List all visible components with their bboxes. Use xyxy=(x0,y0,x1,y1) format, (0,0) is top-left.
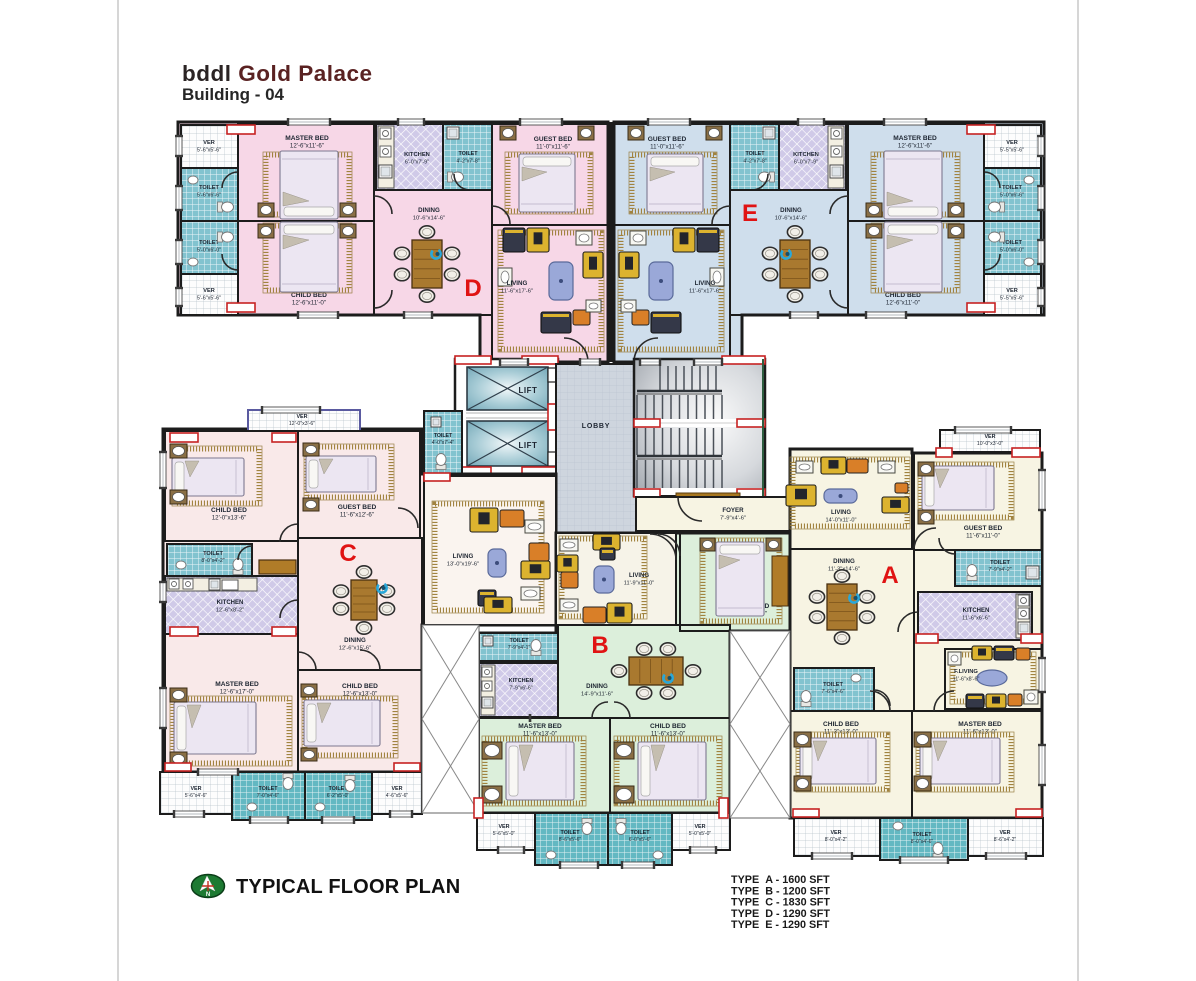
svg-text:5'-0"x6'-0": 5'-0"x6'-0" xyxy=(197,248,221,254)
svg-text:GUEST BED: GUEST BED xyxy=(964,525,1003,532)
svg-text:12'-0"x3'-6": 12'-0"x3'-6" xyxy=(289,421,315,427)
svg-text:LOBBY: LOBBY xyxy=(582,423,611,430)
svg-text:VER: VER xyxy=(296,414,307,420)
svg-text:TYPE C - 1830 SFT: TYPE C - 1830 SFT xyxy=(731,897,830,909)
svg-text:4'-2"x7'-8": 4'-2"x7'-8" xyxy=(456,159,479,165)
svg-text:GUEST BED: GUEST BED xyxy=(534,136,573,143)
svg-text:11'-6"x13'-0": 11'-6"x13'-0" xyxy=(651,731,685,738)
svg-text:KITCHEN: KITCHEN xyxy=(793,152,819,158)
svg-text:MASTER BED: MASTER BED xyxy=(518,723,562,730)
svg-text:4'-0"x7'-4": 4'-0"x7'-4" xyxy=(432,440,455,446)
svg-text:12'-6"x13'-0": 12'-6"x13'-0" xyxy=(343,691,378,698)
svg-text:TOILET: TOILET xyxy=(199,240,219,246)
svg-text:14'-0"x11'-0": 14'-0"x11'-0" xyxy=(826,518,857,524)
svg-text:F.LIVING: F.LIVING xyxy=(954,669,978,675)
svg-text:VER: VER xyxy=(830,830,841,836)
svg-text:12'-6"x11'-0": 12'-6"x11'-0" xyxy=(292,300,326,307)
svg-text:11'-6"x6'-6": 11'-6"x6'-6" xyxy=(962,616,990,622)
svg-text:7'-6"x4'-6": 7'-6"x4'-6" xyxy=(821,689,844,695)
svg-text:TOILET: TOILET xyxy=(912,832,932,838)
svg-text:13'-0"x19'-6": 13'-0"x19'-6" xyxy=(447,562,479,568)
svg-text:GUEST BED: GUEST BED xyxy=(338,504,377,511)
svg-text:FOYER: FOYER xyxy=(722,507,744,514)
svg-text:8'-6"x5'-6": 8'-6"x5'-6" xyxy=(559,837,582,843)
svg-text:LIVING: LIVING xyxy=(507,280,528,287)
svg-text:10'-6"x14'-6": 10'-6"x14'-6" xyxy=(413,216,445,222)
svg-text:8'-0"x4'-2": 8'-0"x4'-2" xyxy=(201,558,224,564)
svg-text:8'-0"x4'-2": 8'-0"x4'-2" xyxy=(825,837,848,843)
svg-text:7'-9"x4'-6": 7'-9"x4'-6" xyxy=(720,516,746,522)
svg-text:KITCHEN: KITCHEN xyxy=(509,678,534,684)
svg-text:bddl Gold Palace: bddl Gold Palace xyxy=(182,61,373,86)
svg-text:TOILET: TOILET xyxy=(823,682,843,688)
svg-text:D: D xyxy=(464,275,481,302)
svg-text:DINING: DINING xyxy=(586,683,608,690)
svg-text:VER: VER xyxy=(1006,140,1018,146)
svg-text:LIFT: LIFT xyxy=(519,386,538,395)
svg-text:6'-0"x7'-9": 6'-0"x7'-9" xyxy=(405,160,429,166)
svg-text:11'-6"x17'-6": 11'-6"x17'-6" xyxy=(501,289,533,295)
svg-text:VER: VER xyxy=(1006,288,1018,294)
svg-text:MASTER BED: MASTER BED xyxy=(285,135,329,142)
svg-text:CHILD BED: CHILD BED xyxy=(823,721,859,728)
svg-text:5'-6"x6'-6": 5'-6"x6'-6" xyxy=(197,193,221,199)
svg-text:B: B xyxy=(591,632,608,659)
svg-text:TYPE B - 1200 SFT: TYPE B - 1200 SFT xyxy=(731,885,830,897)
svg-text:MASTER BED: MASTER BED xyxy=(893,135,937,142)
svg-text:TOILET: TOILET xyxy=(203,551,223,557)
svg-text:5'-6"x5'-6": 5'-6"x5'-6" xyxy=(197,148,221,154)
svg-text:12'-6"x11'-6": 12'-6"x11'-6" xyxy=(290,143,324,150)
svg-text:VER: VER xyxy=(999,830,1010,836)
svg-text:7'-9"x4'-1": 7'-9"x4'-1" xyxy=(508,645,531,651)
svg-text:11'-6"x13'-0": 11'-6"x13'-0" xyxy=(523,731,557,738)
svg-text:VER: VER xyxy=(391,786,402,792)
svg-text:11'-6"x12'-6": 11'-6"x12'-6" xyxy=(340,512,374,519)
svg-text:TYPE A - 1600 SFT: TYPE A - 1600 SFT xyxy=(731,874,830,886)
svg-text:CHILD BED: CHILD BED xyxy=(650,723,686,730)
svg-text:TOILET: TOILET xyxy=(630,830,650,836)
svg-text:VER: VER xyxy=(694,824,705,830)
svg-text:KITCHEN: KITCHEN xyxy=(217,600,244,606)
svg-text:LIFT: LIFT xyxy=(519,441,538,450)
svg-text:14'-9"x11'-6": 14'-9"x11'-6" xyxy=(581,692,613,698)
svg-text:11'-6"x17'-6": 11'-6"x17'-6" xyxy=(689,289,721,295)
svg-text:DINING: DINING xyxy=(780,207,802,214)
svg-text:MASTER BED: MASTER BED xyxy=(958,721,1002,728)
svg-text:12'-6"x11'-6": 12'-6"x11'-6" xyxy=(898,143,932,150)
svg-text:8'-0"x4'-6": 8'-0"x4'-6" xyxy=(911,839,934,845)
svg-text:CHILD BED: CHILD BED xyxy=(342,683,378,690)
svg-text:6'-2"x5'-0": 6'-2"x5'-0" xyxy=(327,793,350,799)
svg-text:TYPE D - 1290 SFT: TYPE D - 1290 SFT xyxy=(731,908,830,920)
svg-text:4'-6"x5'-6": 4'-6"x5'-6" xyxy=(386,793,409,799)
svg-text:GUEST BED: GUEST BED xyxy=(648,136,687,143)
svg-text:4'-2"x7'-8": 4'-2"x7'-8" xyxy=(743,159,766,165)
svg-text:CHILD BED: CHILD BED xyxy=(211,507,247,514)
svg-text:7'-9"x6'-6": 7'-9"x6'-6" xyxy=(509,686,532,692)
svg-text:LIVING: LIVING xyxy=(831,510,851,516)
svg-text:TYPE E - 1290 SFT: TYPE E - 1290 SFT xyxy=(731,919,830,931)
svg-text:10'-6"x14'-6": 10'-6"x14'-6" xyxy=(775,216,807,222)
svg-text:12'-6"x17'-0": 12'-6"x17'-0" xyxy=(220,689,255,696)
svg-text:VER: VER xyxy=(203,288,215,294)
svg-text:VER: VER xyxy=(203,140,215,146)
svg-text:VER: VER xyxy=(498,824,509,830)
svg-text:11'-0"x11'-6": 11'-0"x11'-6" xyxy=(650,144,684,151)
svg-text:10'-0"x3'-0": 10'-0"x3'-0" xyxy=(977,441,1003,447)
svg-text:DINING: DINING xyxy=(418,207,440,214)
svg-text:DINING: DINING xyxy=(833,558,855,565)
svg-text:8'-6"x4'-2": 8'-6"x4'-2" xyxy=(994,837,1017,843)
svg-text:KITCHEN: KITCHEN xyxy=(963,608,990,614)
svg-text:VER: VER xyxy=(190,786,201,792)
svg-text:E: E xyxy=(742,200,758,227)
svg-text:LIVING: LIVING xyxy=(695,280,716,287)
svg-text:5'-6"x4'-6": 5'-6"x4'-6" xyxy=(185,793,208,799)
svg-text:Building - 04: Building - 04 xyxy=(182,85,285,104)
svg-text:C: C xyxy=(339,540,356,567)
svg-text:7'-0"x4'-6": 7'-0"x4'-6" xyxy=(257,793,280,799)
svg-text:11'-6"x11'-0": 11'-6"x11'-0" xyxy=(966,533,1000,540)
svg-text:TOILET: TOILET xyxy=(434,433,453,439)
svg-text:KITCHEN: KITCHEN xyxy=(404,152,430,158)
svg-text:TYPICAL FLOOR PLAN: TYPICAL FLOOR PLAN xyxy=(236,876,460,898)
svg-text:5'-6"x5'-6": 5'-6"x5'-6" xyxy=(197,296,221,302)
svg-text:11'-0"x11'-6": 11'-0"x11'-6" xyxy=(536,144,570,151)
svg-text:TOILET: TOILET xyxy=(1002,185,1022,191)
svg-text:N: N xyxy=(206,892,210,898)
svg-text:TOILET: TOILET xyxy=(509,638,529,644)
svg-text:6'-0"x5'-6": 6'-0"x5'-6" xyxy=(629,837,652,843)
svg-text:DINING: DINING xyxy=(344,637,366,644)
svg-text:5'-0"x5'-0": 5'-0"x5'-0" xyxy=(689,831,712,837)
svg-text:6'-0"x7'-9": 6'-0"x7'-9" xyxy=(794,160,818,166)
svg-text:12'-6"x8'-2": 12'-6"x8'-2" xyxy=(216,608,244,614)
svg-text:5'-0"x6'-0": 5'-0"x6'-0" xyxy=(1000,248,1024,254)
svg-text:11'-9"x11'-0": 11'-9"x11'-0" xyxy=(624,581,654,587)
svg-text:TOILET: TOILET xyxy=(1002,240,1022,246)
svg-text:7'-9"x4'-2": 7'-9"x4'-2" xyxy=(988,567,1011,573)
svg-text:TOILET: TOILET xyxy=(199,185,219,191)
svg-text:TOILET: TOILET xyxy=(258,786,278,792)
svg-text:TOILET: TOILET xyxy=(560,830,580,836)
svg-text:VER: VER xyxy=(984,434,995,440)
svg-text:TOILET: TOILET xyxy=(990,560,1010,566)
svg-text:5'-0"x6'-6": 5'-0"x6'-6" xyxy=(1000,193,1024,199)
svg-text:12'-0"x13'-6": 12'-0"x13'-6" xyxy=(212,515,247,522)
svg-text:LIVING: LIVING xyxy=(453,553,474,560)
svg-text:MASTER BED: MASTER BED xyxy=(215,681,259,688)
svg-text:12'-6"x11'-0": 12'-6"x11'-0" xyxy=(886,300,920,307)
svg-text:5'-6"x5'-0": 5'-6"x5'-0" xyxy=(493,831,516,837)
svg-text:5'-5"x5'-6": 5'-5"x5'-6" xyxy=(1000,296,1024,302)
svg-text:TOILET: TOILET xyxy=(745,151,765,157)
svg-text:5'-5"x5'-6": 5'-5"x5'-6" xyxy=(1000,148,1024,154)
svg-text:TOILET: TOILET xyxy=(458,151,478,157)
svg-text:A: A xyxy=(881,562,898,589)
svg-text:11'-6"x8'-6": 11'-6"x8'-6" xyxy=(953,677,980,683)
svg-text:LIVING: LIVING xyxy=(629,573,649,579)
